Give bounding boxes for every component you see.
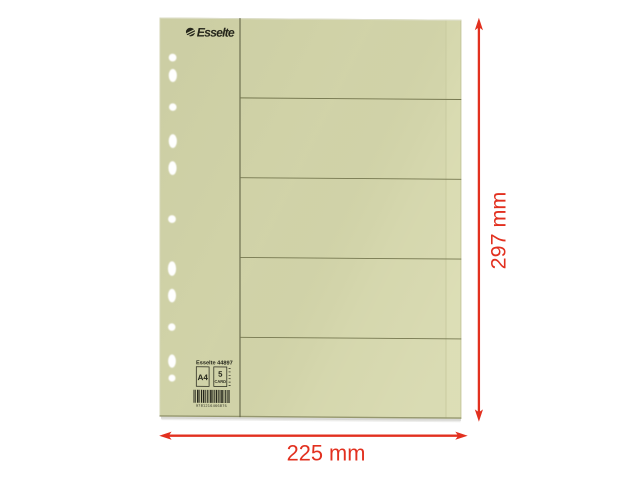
svg-text:9781216466875: 9781216466875 bbox=[196, 404, 227, 408]
svg-text:Esselte: Esselte bbox=[197, 25, 235, 39]
svg-text:CARD: CARD bbox=[215, 379, 227, 384]
svg-text:297 mm: 297 mm bbox=[487, 192, 511, 270]
svg-text:Esselte 44897: Esselte 44897 bbox=[196, 360, 233, 366]
svg-text:5: 5 bbox=[218, 370, 223, 379]
svg-text:A4: A4 bbox=[197, 373, 208, 382]
svg-text:225 mm: 225 mm bbox=[287, 440, 366, 465]
